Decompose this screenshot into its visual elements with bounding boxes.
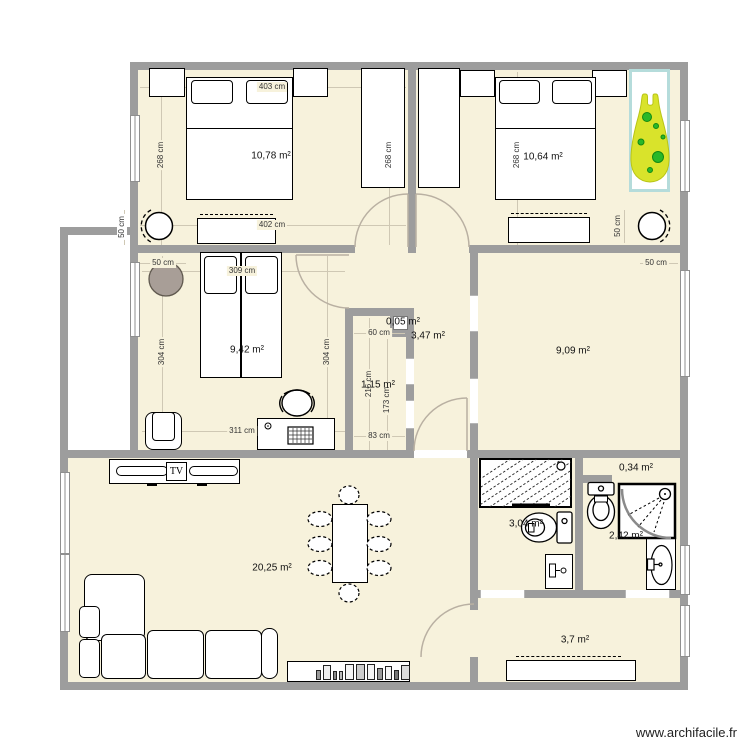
door-bedroom2 xyxy=(416,194,469,247)
room-label-shaft: 0,05 m² xyxy=(386,317,420,328)
dim-label-60: 60 cm xyxy=(366,328,392,338)
dim-label-403: 403 cm xyxy=(257,82,287,92)
room-label-office: 9,09 m² xyxy=(556,346,590,357)
dim-label-268b: 268 cm xyxy=(384,140,394,170)
round-chair xyxy=(639,210,670,242)
room-label-bathroom: 3,04 m² xyxy=(509,519,543,530)
dim-label-402: 402 cm xyxy=(257,220,287,230)
plan-overlay xyxy=(0,0,750,750)
dim-label-304a: 304 cm xyxy=(157,337,167,367)
room-label-hallway: 3,47 m² xyxy=(411,331,445,342)
door-bedroom3 xyxy=(296,255,349,308)
dim-label-268a: 268 cm xyxy=(156,140,166,170)
room-label-shower-room: 2,42 m² xyxy=(609,531,643,542)
cabinet-handle xyxy=(550,564,567,577)
room-label-bedroom-2: 10,64 m² xyxy=(523,152,562,163)
door-bedroom1 xyxy=(355,194,408,247)
dim-label-309: 309 cm xyxy=(227,266,257,276)
dim-label-50a: 50 cm xyxy=(117,214,127,240)
door-hallway xyxy=(414,398,467,451)
office-chair xyxy=(280,390,315,416)
watermark: www.archifacile.fr xyxy=(636,725,737,740)
room-label-living-room: 20,25 m² xyxy=(252,563,291,574)
dim-label-304b: 304 cm xyxy=(322,337,332,367)
room-label-entry: 3,7 m² xyxy=(561,635,589,646)
keyboard xyxy=(288,427,313,444)
room-label-closet: 1,15 m² xyxy=(361,380,395,391)
round-chair xyxy=(141,210,172,242)
toilet xyxy=(588,483,615,529)
washbasin xyxy=(648,546,673,585)
dim-label-268c: 268 cm xyxy=(512,140,522,170)
dim-label-50d: 50 cm xyxy=(643,258,669,268)
room-label-niche: 0,34 m² xyxy=(619,463,653,474)
room-label-bedroom-1: 10,78 m² xyxy=(251,151,290,162)
floor-plan-canvas: TV xyxy=(0,0,750,750)
dim-label-50c: 50 cm xyxy=(150,258,176,268)
door-living-entry xyxy=(421,604,474,657)
dining-chairs xyxy=(308,486,391,602)
dim-label-50b: 50 cm xyxy=(613,213,623,239)
dim-label-311: 311 cm xyxy=(227,426,257,436)
desk-lamp-icon xyxy=(265,423,271,429)
dim-label-83: 83 cm xyxy=(366,431,392,441)
room-label-bedroom-3: 9,42 m² xyxy=(230,345,264,356)
plant xyxy=(631,94,669,182)
